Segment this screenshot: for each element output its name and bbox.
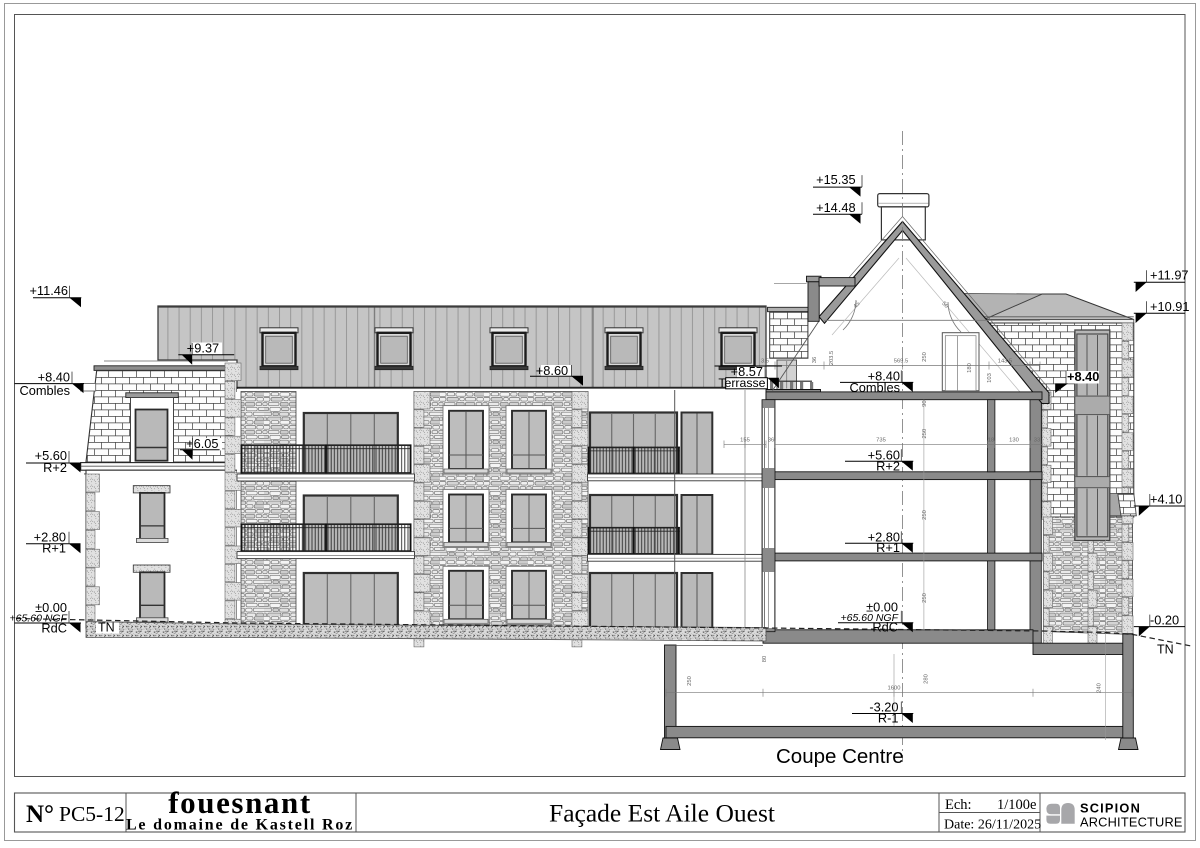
svg-text:+11.46: +11.46: [29, 283, 68, 298]
svg-text:569.5: 569.5: [894, 359, 909, 365]
svg-text:250: 250: [922, 429, 928, 439]
svg-text:R+1: R+1: [42, 541, 66, 556]
svg-text:143.5: 143.5: [998, 359, 1013, 365]
svg-text:Le domaine de Kastell Roz: Le domaine de Kastell Roz: [126, 817, 354, 834]
svg-text:ARCHITECTURE: ARCHITECTURE: [1080, 815, 1183, 830]
svg-text:Ech:: Ech:: [945, 797, 972, 813]
svg-text:fouesnant: fouesnant: [168, 785, 312, 820]
svg-text:280: 280: [924, 674, 930, 684]
svg-text:+14.48: +14.48: [816, 200, 856, 215]
svg-text:250: 250: [922, 352, 928, 362]
svg-text:203.5: 203.5: [829, 351, 835, 366]
svg-text:RdC: RdC: [41, 621, 67, 636]
svg-text:155: 155: [740, 438, 750, 444]
svg-text:Coupe Centre: Coupe Centre: [776, 745, 904, 768]
svg-text:+6.05: +6.05: [186, 436, 218, 451]
svg-text:+11.97: +11.97: [1150, 268, 1189, 283]
svg-text:R-1: R-1: [878, 711, 899, 726]
svg-text:36: 36: [812, 357, 818, 363]
svg-text:180: 180: [967, 363, 973, 373]
svg-text:18: 18: [988, 438, 994, 444]
svg-text:+8.40: +8.40: [1067, 369, 1099, 384]
svg-text:Combles: Combles: [850, 380, 901, 395]
svg-text:Date: 26/11/2025: Date: 26/11/2025: [944, 818, 1041, 833]
svg-text:TN: TN: [1157, 643, 1174, 657]
svg-text:RdC: RdC: [872, 620, 898, 635]
svg-text:+10.91: +10.91: [1150, 299, 1190, 314]
svg-text:TN: TN: [98, 621, 115, 635]
svg-text:735: 735: [876, 438, 886, 444]
svg-text:R+2: R+2: [43, 460, 67, 475]
svg-text:130: 130: [1009, 438, 1019, 444]
svg-text:Terrasse: Terrasse: [718, 376, 765, 390]
svg-text:1/100e: 1/100e: [997, 797, 1036, 813]
svg-text:+15.35: +15.35: [816, 172, 856, 187]
svg-text:N°: N°: [26, 801, 54, 828]
svg-text:PC5-12: PC5-12: [59, 802, 125, 826]
svg-text:250: 250: [687, 676, 693, 686]
svg-text:±0.00: ±0.00: [35, 600, 67, 615]
svg-text:33: 33: [1034, 438, 1040, 444]
svg-text:Combles: Combles: [20, 383, 71, 398]
svg-text:-0.20: -0.20: [1150, 613, 1179, 628]
svg-text:1600: 1600: [888, 686, 901, 692]
svg-text:Façade Est Aile Ouest: Façade Est Aile Ouest: [549, 799, 775, 828]
svg-text:SCIPION: SCIPION: [1080, 801, 1141, 816]
svg-text:+9.37: +9.37: [187, 341, 219, 356]
svg-text:±0.00: ±0.00: [866, 600, 898, 615]
svg-text:36: 36: [768, 438, 774, 444]
svg-text:R+1: R+1: [876, 540, 900, 555]
svg-text:80: 80: [762, 656, 768, 662]
svg-text:103: 103: [987, 373, 993, 383]
svg-text:250: 250: [922, 510, 928, 520]
svg-text:90: 90: [922, 400, 928, 406]
svg-text:250: 250: [922, 593, 928, 603]
svg-text:+4.10: +4.10: [1150, 492, 1182, 507]
svg-text:240: 240: [1097, 683, 1103, 693]
svg-text:R+2: R+2: [876, 459, 900, 474]
